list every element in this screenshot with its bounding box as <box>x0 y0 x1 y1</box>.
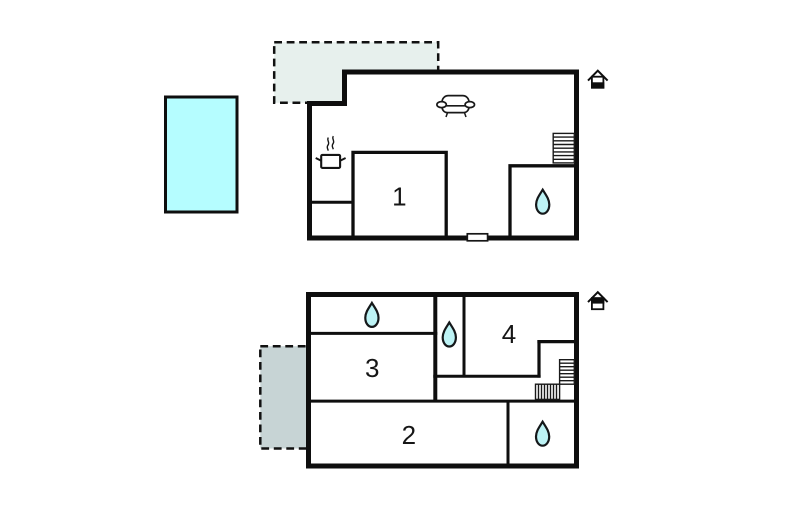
svg-text:4: 4 <box>502 319 516 349</box>
svg-text:2: 2 <box>402 420 416 450</box>
svg-text:1: 1 <box>392 182 406 212</box>
svg-text:3: 3 <box>365 353 379 383</box>
